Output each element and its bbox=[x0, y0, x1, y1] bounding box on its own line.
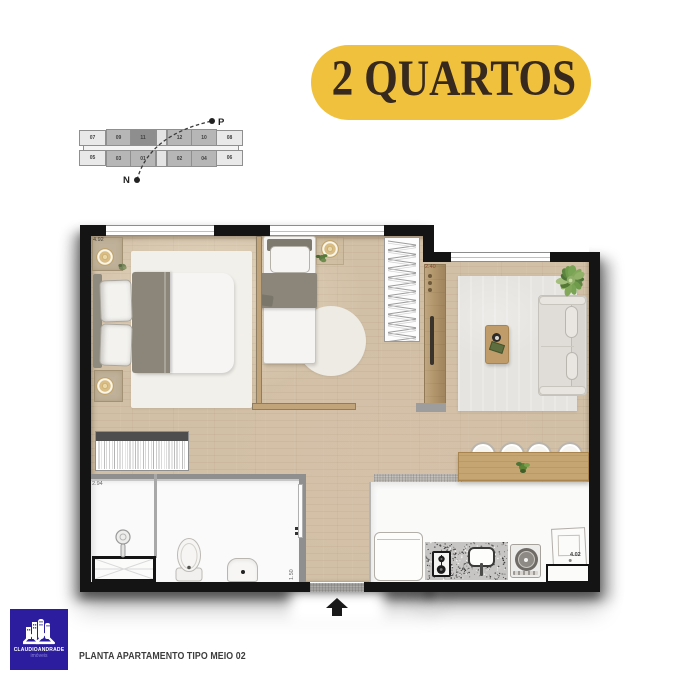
svg-text:N: N bbox=[123, 175, 130, 186]
svg-text:P: P bbox=[218, 117, 225, 128]
